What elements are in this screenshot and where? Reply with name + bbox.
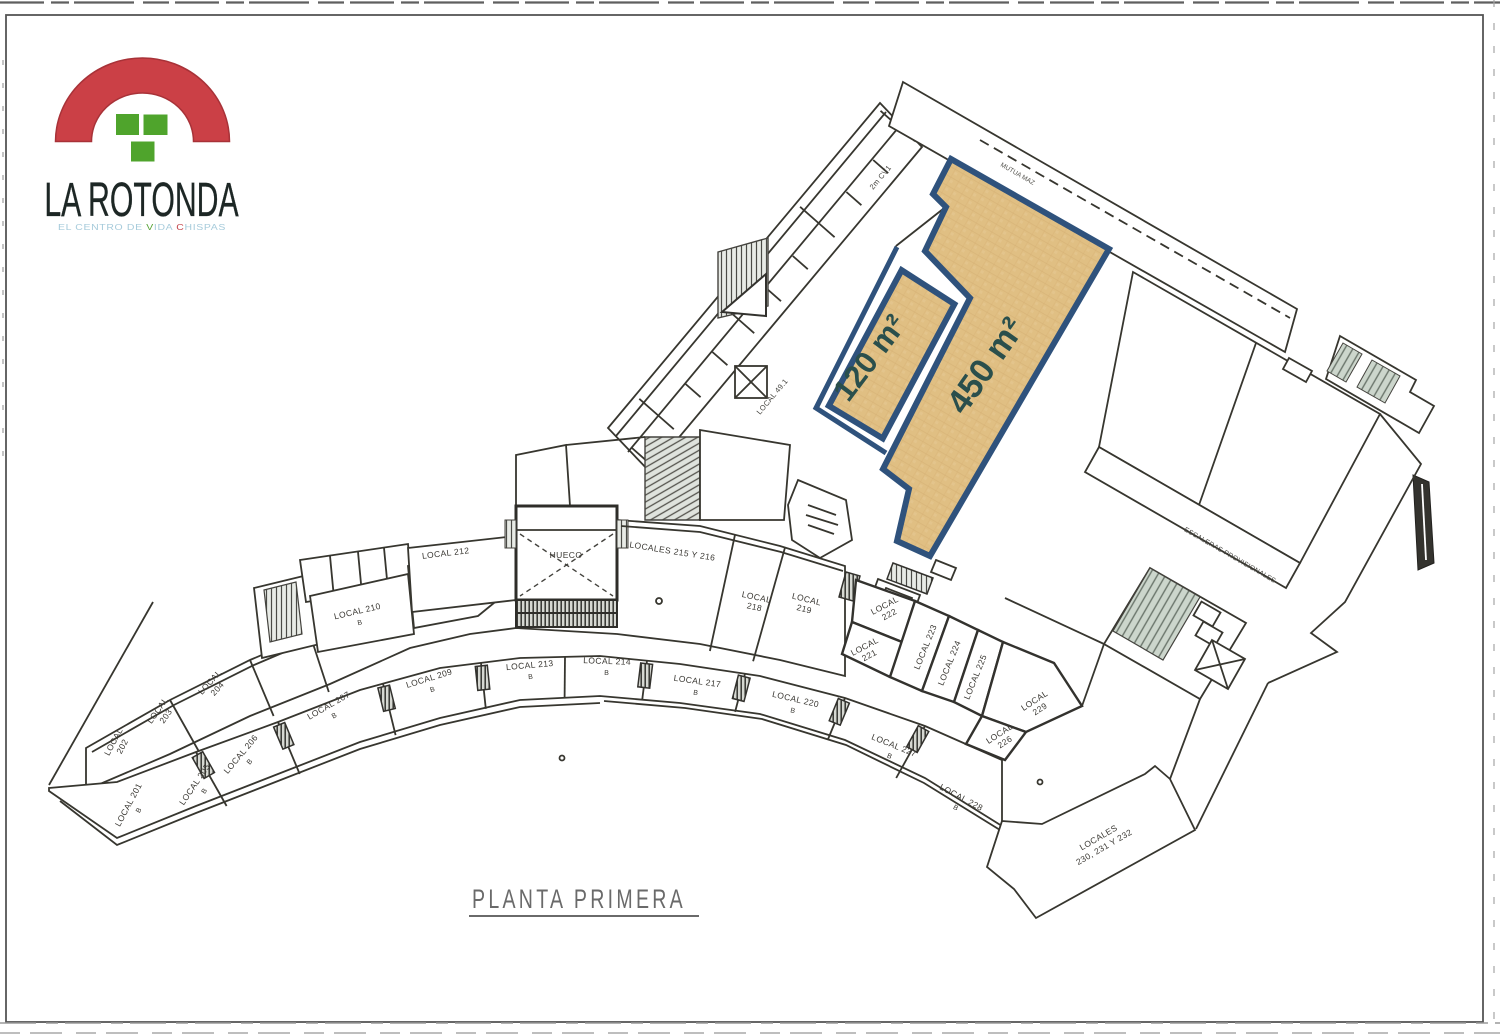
svg-text:LA ROTONDA: LA ROTONDA xyxy=(44,174,239,227)
svg-text:PLANTA PRIMERA: PLANTA PRIMERA xyxy=(472,884,686,914)
svg-text:HUECO: HUECO xyxy=(550,550,583,560)
svg-text:EL CENTRO DE VIDA CHISPAS: EL CENTRO DE VIDA CHISPAS xyxy=(58,223,226,232)
